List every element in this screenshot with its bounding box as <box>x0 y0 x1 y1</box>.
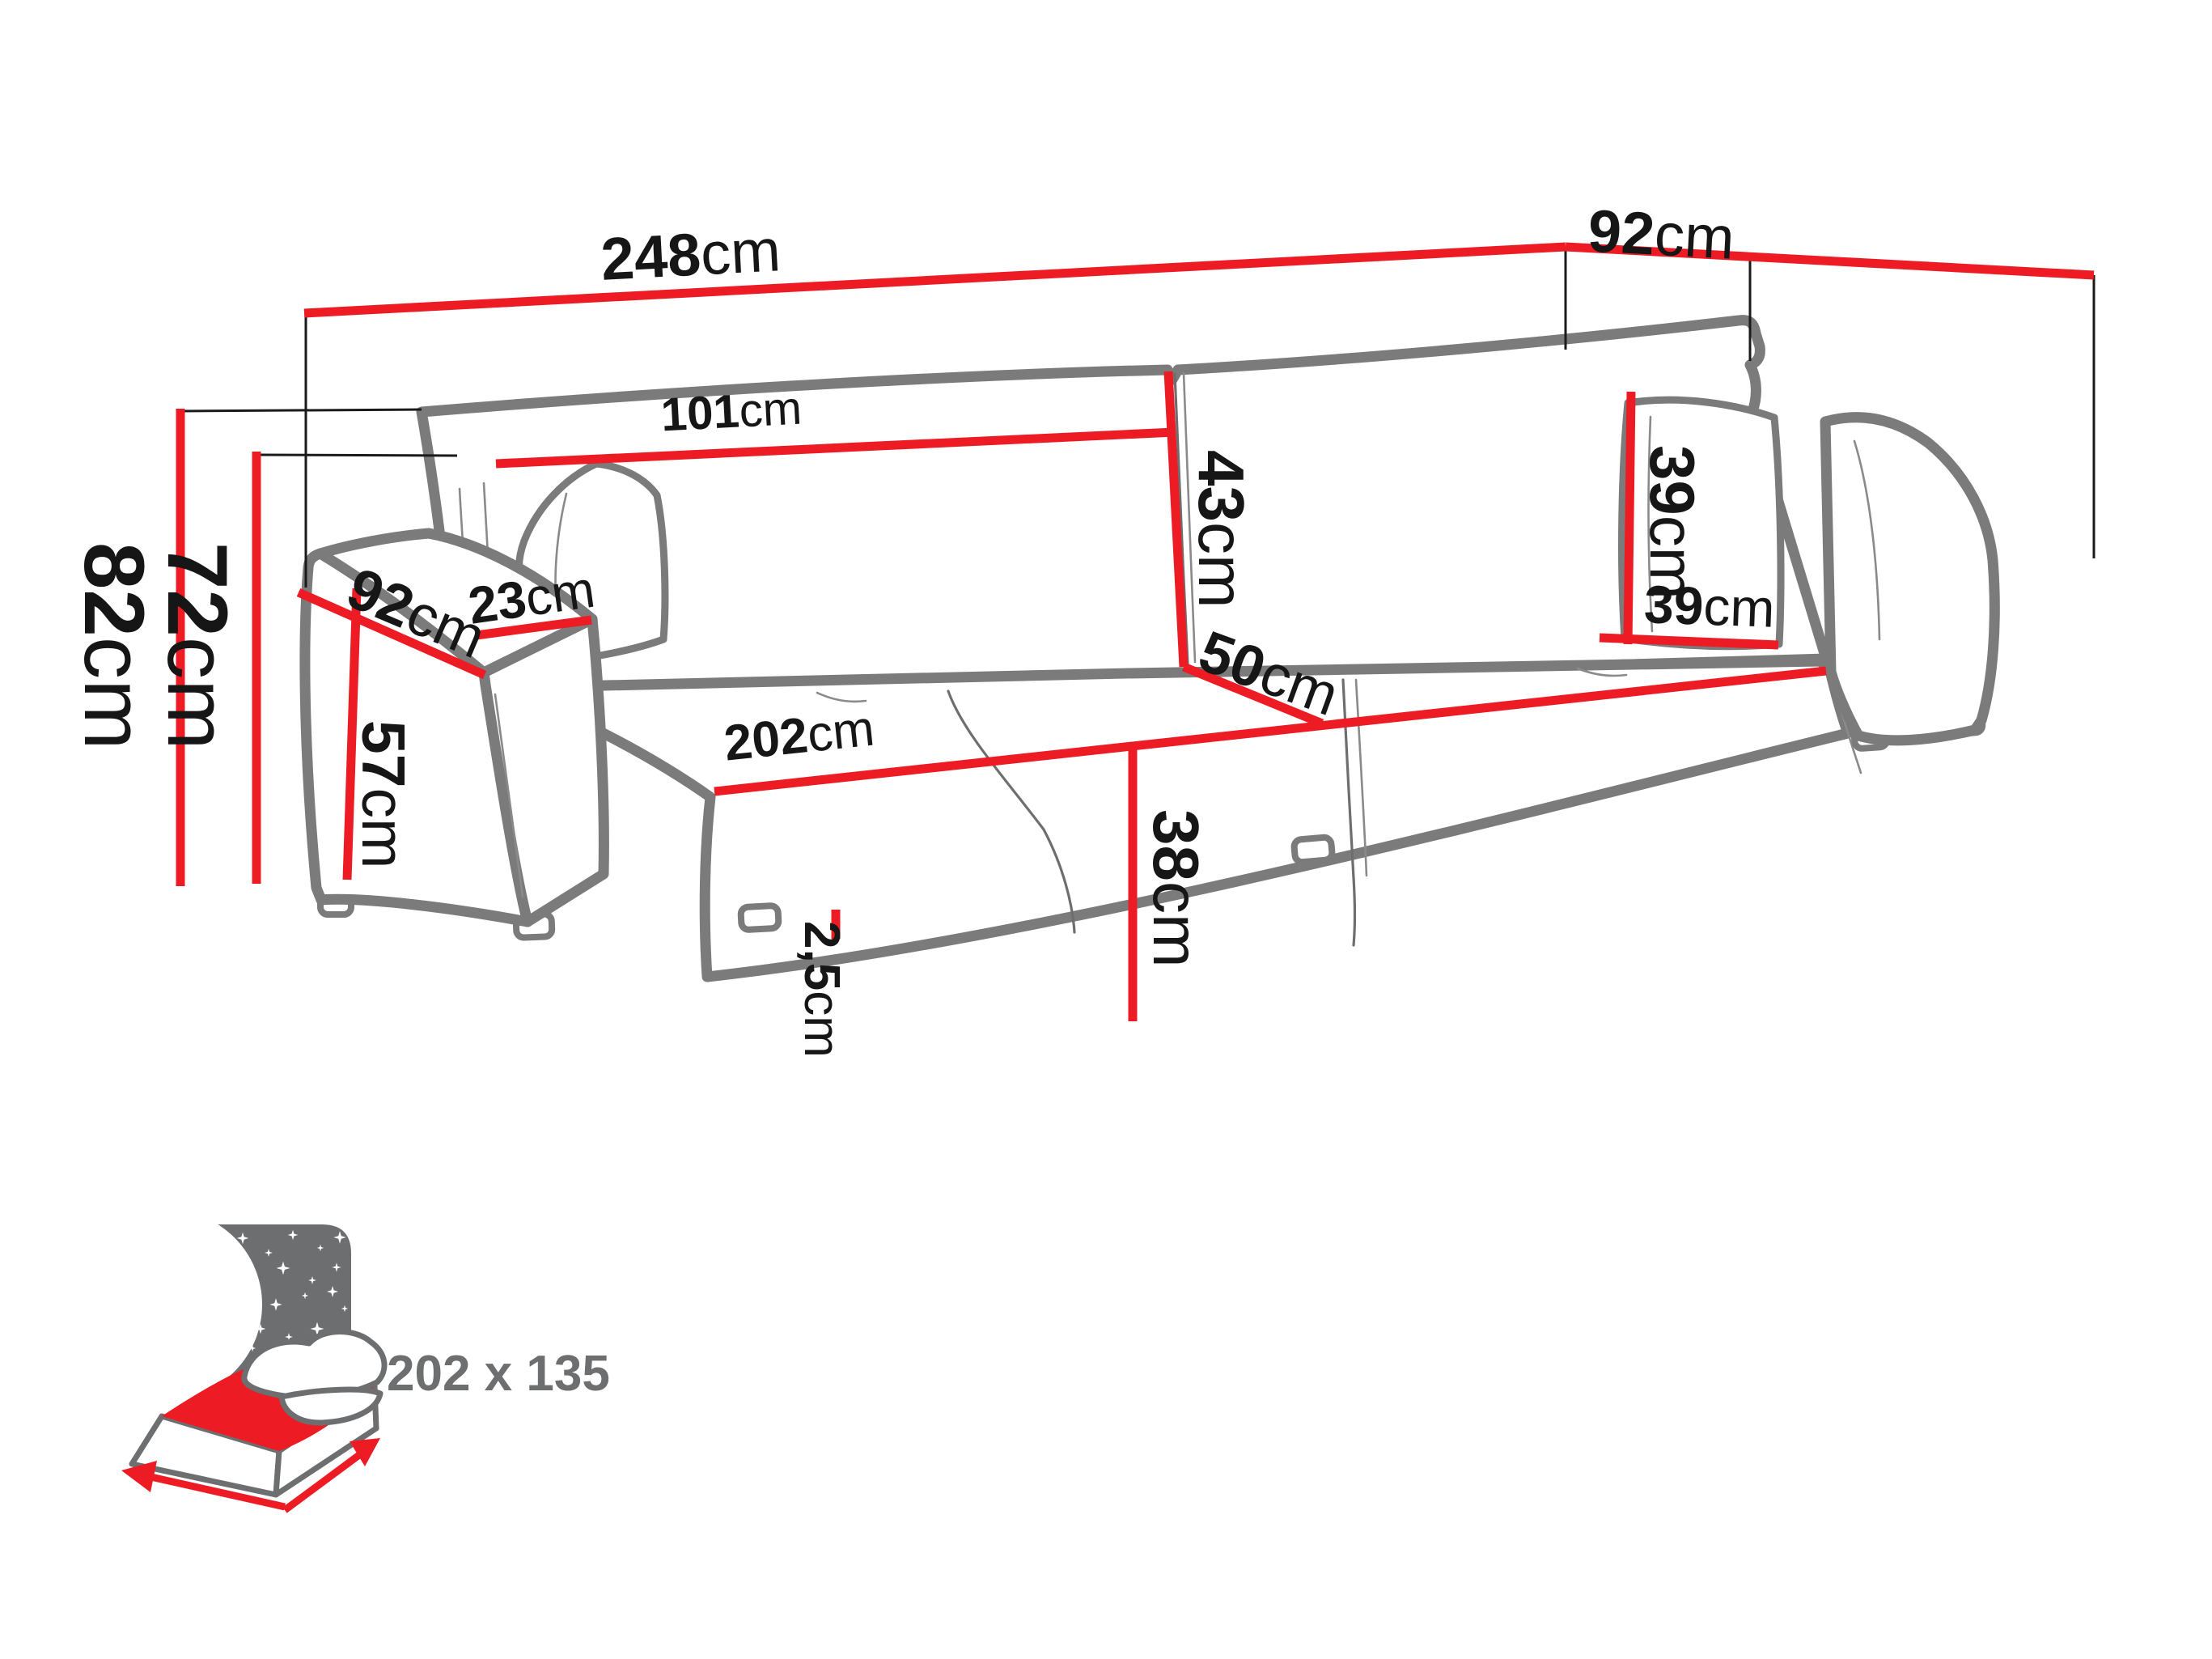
label-pillow-width: 39cm <box>1643 574 1776 639</box>
label-total-height: 82cm <box>66 542 161 750</box>
extension-line <box>180 409 422 411</box>
sleeping-area-label: 202 x 135 <box>387 1346 610 1402</box>
diagram-canvas: 248cm 92cm 101cm 43cm 39cm 39cm 92cm 23c… <box>0 0 2212 1659</box>
label-overall-depth: 92cm <box>1587 197 1736 271</box>
label-seat-height: 38cm <box>1140 809 1212 968</box>
sleeping-function-icon: 202 x 135 <box>73 1210 610 1510</box>
label-armrest-height: 57cm <box>350 720 417 868</box>
label-frame-height: 72cm <box>150 542 244 750</box>
label-overall-width: 248cm <box>600 216 782 293</box>
extension-line <box>256 455 457 456</box>
dim-line-pillow-height <box>1628 392 1631 644</box>
sofa-foot <box>1294 837 1333 863</box>
moon-icon <box>73 1210 262 1399</box>
dim-line-overall-width <box>304 247 1566 313</box>
label-leg-height: 2,5cm <box>794 921 850 1058</box>
label-back-cushion-height: 43cm <box>1185 450 1257 609</box>
sofa-dimension-diagram: 248cm 92cm 101cm 43cm 39cm 39cm 92cm 23c… <box>0 0 2212 1659</box>
label-backrest-width: 101cm <box>659 382 803 442</box>
right-armrest <box>1825 418 1994 740</box>
sofa-foot <box>740 906 778 930</box>
